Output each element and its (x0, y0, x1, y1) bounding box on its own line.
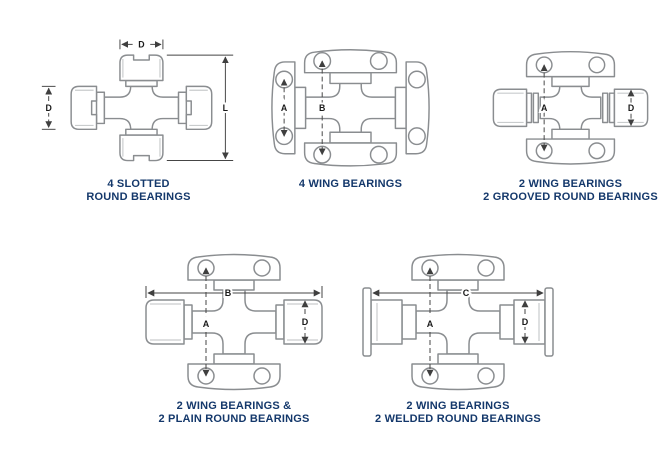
figure-caption: 2 WING BEARINGS 2 GROOVED ROUND BEARINGS (468, 178, 670, 204)
bolt-hole (589, 143, 605, 159)
bolt-hole (371, 53, 388, 70)
bolt-hole (589, 57, 605, 73)
caption-line: 2 GROOVED ROUND BEARINGS (468, 191, 670, 204)
dim-label-cap-diameter: D (302, 317, 309, 327)
cross-body (540, 86, 601, 129)
figure-2-wing-2-grooved-round-bearings: A D 2 WING BEARINGS 2 GROOVED ROUND BEAR… (468, 26, 670, 204)
welded-round-bearing-left (363, 288, 416, 356)
dim-label-wing-hole-span: A (281, 103, 288, 113)
diagram-2-wing-2-grooved-round-bearings: A D (468, 26, 670, 176)
bolt-hole (478, 260, 494, 276)
caption-line: 4 WING BEARINGS (248, 178, 453, 191)
figure-2-wing-2-welded-round-bearings: C A D 2 WING BEARINGS 2 WELDED ROUND BEA… (348, 236, 568, 426)
diagram-4-wing-bearings: A B (248, 26, 453, 176)
caption-line: 2 WING BEARINGS & (124, 400, 344, 413)
wing-bearing-right (395, 62, 429, 154)
plain-round-bearing-left (146, 300, 192, 344)
bearing-types-chart: D D L 4 SLOTTED ROUND BEARINGS (0, 0, 670, 450)
bolt-hole (276, 71, 293, 88)
slotted-cap-right (179, 86, 212, 129)
dim-label-hole-span: A (541, 103, 548, 113)
wing-bearing-top (527, 52, 615, 87)
caption-line: ROUND BEARINGS (36, 191, 241, 204)
caption-line: 2 WELDED ROUND BEARINGS (348, 413, 568, 426)
groove-ring (603, 93, 608, 122)
diagram-4-slotted-round-bearings: D D L (36, 26, 241, 176)
dim-label-cap-width: D (138, 39, 144, 49)
wing-bearing-top (188, 255, 280, 291)
slotted-cap-bottom (120, 129, 163, 160)
figure-caption: 4 WING BEARINGS (248, 178, 453, 191)
groove-ring (533, 93, 538, 122)
diagram-2-wing-2-welded-round-bearings: C A D (348, 236, 568, 398)
dim-label-overall-width: B (225, 288, 232, 298)
wing-bearing-bottom (412, 354, 504, 390)
figure-4-wing-bearings: A B 4 WING BEARINGS (248, 26, 453, 191)
caption-line: 4 SLOTTED (36, 178, 241, 191)
wing-bearing-left (272, 62, 306, 154)
dimension-cap-width: D (120, 39, 163, 49)
slotted-cap-left (71, 86, 104, 129)
wing-bearing-top (305, 50, 397, 84)
dimension-overall-hole-span: B (319, 61, 325, 155)
weld-flange (545, 288, 553, 356)
dim-label-cap-diameter: D (46, 103, 52, 113)
caption-line: 2 WING BEARINGS (348, 400, 568, 413)
cross-body (104, 86, 178, 129)
bolt-hole (409, 71, 426, 88)
wing-bearing-bottom (527, 129, 615, 164)
slotted-cap-top (120, 55, 163, 86)
bolt-hole (254, 260, 270, 276)
dimension-hole-span: A (541, 65, 548, 151)
dim-label-overall-width: C (463, 288, 470, 298)
dim-label-overall-hole-span: B (319, 103, 325, 113)
bolt-hole (254, 368, 270, 384)
dim-label-hole-span: A (203, 319, 210, 329)
dim-label-cap-diameter: D (628, 103, 634, 113)
dim-label-overall-length: L (223, 103, 229, 113)
dimension-hole-span: A (203, 268, 210, 376)
dim-label-cap-diameter: D (522, 317, 529, 327)
grooved-round-bearing-right (603, 89, 648, 126)
figure-caption: 2 WING BEARINGS 2 WELDED ROUND BEARINGS (348, 400, 568, 426)
dimension-hole-span: A (427, 268, 434, 376)
wing-bearing-top (412, 255, 504, 291)
diagram-2-wing-2-plain-round-bearings: B A D (124, 236, 344, 398)
wing-bearing-bottom (305, 132, 397, 166)
wing-bearing-bottom (188, 354, 280, 390)
figure-2-wing-2-plain-round-bearings: B A D 2 WING BEARINGS & 2 PLAIN ROUND BE… (124, 236, 344, 426)
bolt-hole (409, 128, 426, 145)
caption-line: 2 PLAIN ROUND BEARINGS (124, 413, 344, 426)
groove-ring (527, 93, 532, 122)
caption-line: 2 WING BEARINGS (468, 178, 670, 191)
dimension-cap-diameter: D (42, 86, 56, 129)
grooved-round-bearing-left (493, 89, 538, 126)
figure-caption: 2 WING BEARINGS & 2 PLAIN ROUND BEARINGS (124, 400, 344, 426)
weld-flange (363, 288, 371, 356)
bolt-hole (371, 146, 388, 163)
dim-label-hole-span: A (427, 319, 434, 329)
bolt-hole (478, 368, 494, 384)
figure-caption: 4 SLOTTED ROUND BEARINGS (36, 178, 241, 204)
groove-ring (610, 93, 615, 122)
figure-4-slotted-round-bearings: D D L 4 SLOTTED ROUND BEARINGS (36, 26, 241, 204)
plain-round-bearing-right (276, 300, 322, 344)
